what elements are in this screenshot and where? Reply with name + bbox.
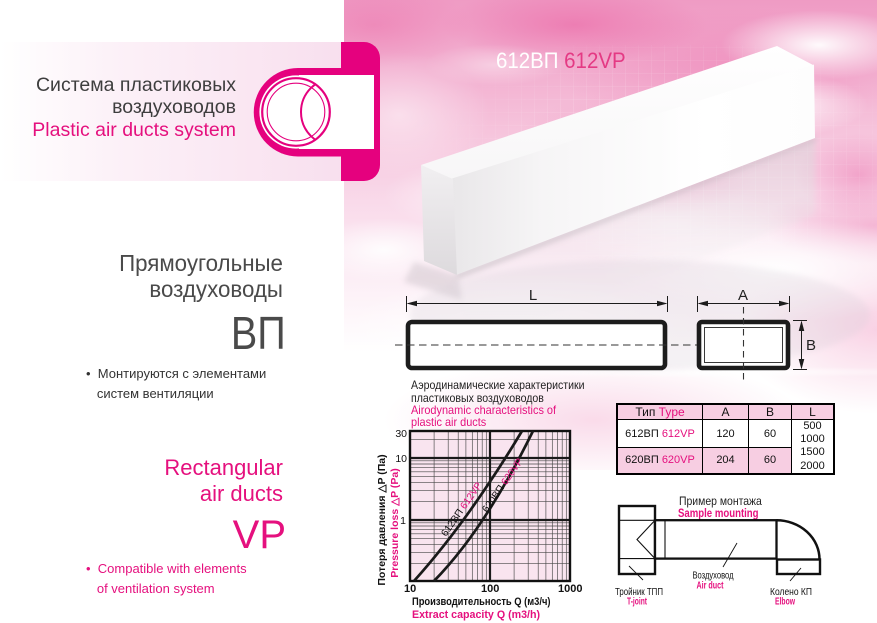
- svg-text:B: B: [806, 337, 816, 354]
- svg-text:1000: 1000: [558, 583, 582, 595]
- svg-text:A: A: [738, 288, 748, 304]
- svg-text:Elbow: Elbow: [775, 597, 795, 608]
- svg-text:10: 10: [404, 583, 416, 595]
- svg-text:1: 1: [400, 515, 406, 527]
- svg-text:Air duct: Air duct: [697, 581, 724, 592]
- svg-text:100: 100: [481, 583, 499, 595]
- svg-text:30: 30: [395, 428, 407, 440]
- svg-text:T-joint: T-joint: [627, 597, 647, 608]
- svg-text:L: L: [529, 288, 537, 304]
